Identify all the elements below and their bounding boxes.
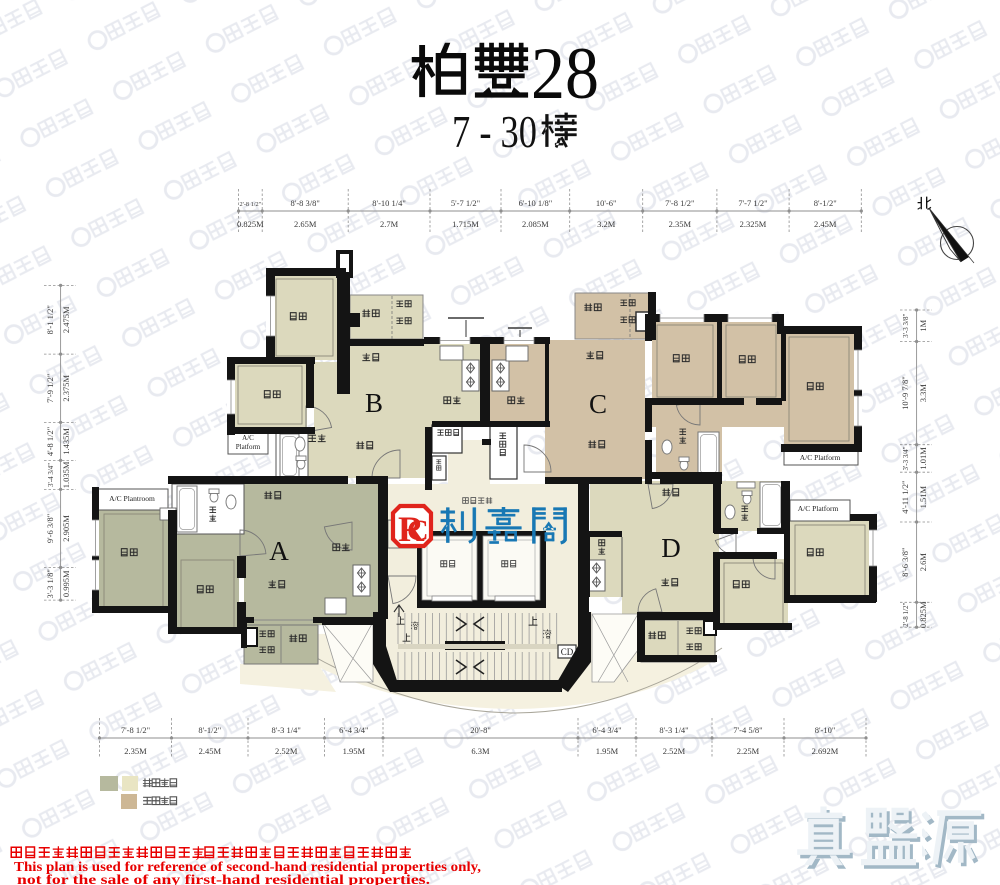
svg-text:2.52M: 2.52M [275,746,298,756]
svg-text:3'-3 3/4": 3'-3 3/4" [902,446,910,470]
svg-text:28: 28 [531,33,599,115]
svg-text:2.45M: 2.45M [199,746,222,756]
svg-text:2.475M: 2.475M [61,306,71,333]
svg-text:8'-6 3/8": 8'-6 3/8" [900,547,910,576]
svg-text:1.435M: 1.435M [61,428,71,455]
svg-text:D: D [661,533,681,563]
svg-text:6.3M: 6.3M [471,746,490,756]
svg-text:0.995M: 0.995M [61,570,71,597]
svg-text:6'-4 3/4": 6'-4 3/4" [339,725,368,735]
svg-text:3'-4 3/4": 3'-4 3/4" [47,463,55,487]
svg-text:8'-10": 8'-10" [815,725,836,735]
svg-text:2.52M: 2.52M [663,746,686,756]
svg-text:3.2M: 3.2M [597,219,616,229]
svg-text:1.95M: 1.95M [596,746,619,756]
svg-text:A/C Platform: A/C Platform [798,504,839,513]
svg-text:7'-9 1/2": 7'-9 1/2" [45,374,55,403]
svg-text:2.25M: 2.25M [737,746,760,756]
svg-text:20'-8": 20'-8" [470,725,491,735]
svg-text:0.825M: 0.825M [237,219,264,229]
svg-text:7'-8 1/2": 7'-8 1/2" [665,198,694,208]
svg-text:2.325M: 2.325M [740,219,767,229]
svg-text:7'-4 5/8": 7'-4 5/8" [733,725,762,735]
svg-text:6'-4 3/4": 6'-4 3/4" [592,725,621,735]
svg-text:A/C Plantroom: A/C Plantroom [109,494,155,503]
svg-text:1M: 1M [918,319,928,331]
svg-text:2.6M: 2.6M [918,553,928,572]
svg-text:1.01M: 1.01M [918,447,928,470]
svg-text:2.35M: 2.35M [124,746,147,756]
svg-text:2.7M: 2.7M [380,219,399,229]
svg-text:A: A [269,536,289,566]
svg-text:8'-3 1/4": 8'-3 1/4" [659,725,688,735]
svg-text:3.3M: 3.3M [918,384,928,403]
svg-text:1.715M: 1.715M [452,219,479,229]
svg-text:C: C [589,389,607,419]
svg-text:C: C [407,514,429,547]
svg-text:2.905M: 2.905M [61,515,71,542]
svg-text:2.45M: 2.45M [814,219,837,229]
svg-text:6'-10 1/8": 6'-10 1/8" [519,198,553,208]
svg-text:2'-8 1/2": 2'-8 1/2" [902,603,910,627]
svg-text:A/C: A/C [242,434,254,442]
svg-text:not for the sale of any first-: not for the sale of any first-hand resid… [17,872,430,885]
svg-text:9'-6 3/8": 9'-6 3/8" [45,514,55,543]
svg-text:8'-1/2": 8'-1/2" [198,725,221,735]
svg-text:CD: CD [561,647,574,657]
svg-text:Platform: Platform [236,443,261,451]
svg-text:7 - 30: 7 - 30 [452,106,537,157]
svg-text:3'-3 1/8": 3'-3 1/8" [45,569,55,598]
svg-text:4'-11 1/2": 4'-11 1/2" [900,480,910,513]
svg-text:3'-3 3/8": 3'-3 3/8" [902,314,910,338]
svg-text:2.692M: 2.692M [812,746,839,756]
svg-text:A/C Platform: A/C Platform [800,453,841,462]
svg-text:5'-7 1/2": 5'-7 1/2" [451,198,480,208]
svg-text:0.825M: 0.825M [918,601,928,628]
svg-text:2.375M: 2.375M [61,374,71,401]
svg-text:1.51M: 1.51M [918,485,928,508]
svg-text:8'-1 1/2": 8'-1 1/2" [45,305,55,334]
svg-text:8'-1/2": 8'-1/2" [814,198,837,208]
svg-text:1.95M: 1.95M [343,746,366,756]
svg-text:4'-8 1/2": 4'-8 1/2" [45,427,55,456]
svg-text:8'-3 1/4": 8'-3 1/4" [272,725,301,735]
svg-text:2.35M: 2.35M [669,219,692,229]
svg-text:8'-10 1/4": 8'-10 1/4" [372,198,406,208]
svg-text:2'-8 1/2": 2'-8 1/2" [240,201,262,208]
svg-text:7'-7 1/2": 7'-7 1/2" [738,198,767,208]
svg-text:B: B [365,388,383,418]
svg-text:10'-6": 10'-6" [596,198,617,208]
svg-text:2.085M: 2.085M [522,219,549,229]
svg-text:1.035M: 1.035M [61,461,71,488]
svg-text:10'-9 7/8": 10'-9 7/8" [900,376,910,410]
svg-text:2.65M: 2.65M [294,219,317,229]
svg-text:7'-8 1/2": 7'-8 1/2" [121,725,150,735]
svg-text:8'-8 3/8": 8'-8 3/8" [291,198,320,208]
